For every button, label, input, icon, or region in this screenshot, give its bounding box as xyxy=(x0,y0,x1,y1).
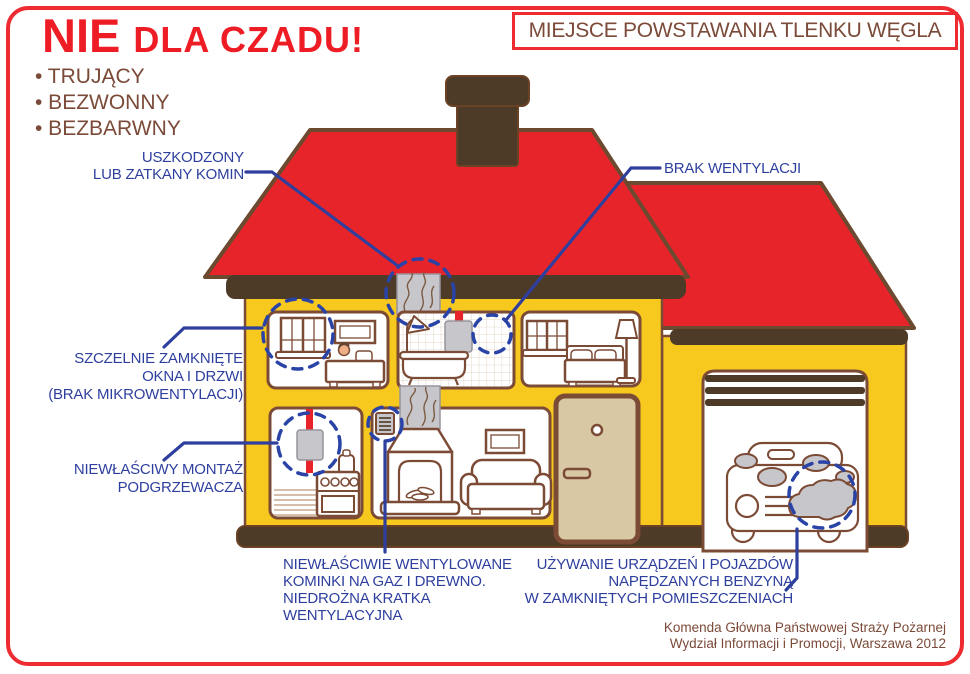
blocked-chimney xyxy=(397,272,440,314)
kitchen-water-heater xyxy=(297,430,323,460)
header-box-text: MIEJSCE POWSTAWANIA TLENKU WĘGLA xyxy=(529,19,942,43)
chimney-stack xyxy=(457,100,518,166)
garage-door-slat xyxy=(705,375,865,382)
poster-title: NIE DLA CZADU! xyxy=(42,8,364,63)
poster: NIE DLA CZADU! MIEJSCE POWSTAWANIA TLENK… xyxy=(0,0,970,674)
title-nie: NIE xyxy=(42,8,120,63)
garage-door-slat xyxy=(705,399,865,406)
window-sill xyxy=(276,352,330,358)
main-roof xyxy=(205,130,688,277)
door-handle xyxy=(564,469,590,478)
fireplace-flue xyxy=(400,386,440,429)
floor-lamp-shade xyxy=(616,320,637,338)
label-heater: NIEWŁAŚCIWY MONTAŻ PODGRZEWACZA xyxy=(0,461,243,497)
header-box: MIEJSCE POWSTAWANIA TLENKU WĘGLA xyxy=(512,12,958,50)
bedroom-right xyxy=(522,312,640,386)
bullet-list: • TRUJĄCY • BEZWONNY • BEZBARWNY xyxy=(35,64,181,142)
main-eave xyxy=(226,275,686,299)
front-door xyxy=(556,396,638,542)
bullet-item: • BEZWONNY xyxy=(35,90,181,116)
car-headlight xyxy=(736,495,758,517)
bathroom xyxy=(398,311,514,388)
garage-eave xyxy=(670,329,908,345)
bullet-item: • TRUJĄCY xyxy=(35,64,181,90)
bullet-item: • BEZBARWNY xyxy=(35,116,181,142)
bathroom-water-heater xyxy=(445,321,472,352)
car-windshield xyxy=(768,450,794,459)
label-garage: UŻYWANIE URZĄDZEŃ I POJAZDÓW NAPĘDZANYCH… xyxy=(450,556,793,607)
sofa xyxy=(461,460,551,514)
title-dla-czadu: DLA CZADU! xyxy=(133,19,364,61)
chimney-cap xyxy=(446,76,529,106)
label-no-ventilation: BRAK WENTYLACJI xyxy=(664,160,801,177)
bed xyxy=(565,360,625,382)
oven-door xyxy=(322,496,354,512)
bed xyxy=(326,361,384,382)
bathtub xyxy=(403,359,465,378)
window-sill xyxy=(523,350,571,356)
garage-door-slat xyxy=(705,387,865,394)
door-peephole xyxy=(592,425,602,435)
vent-grille xyxy=(376,413,394,434)
label-chimney: USZKODZONY LUB ZATKANY KOMIN xyxy=(0,149,244,183)
label-sealed-windows: SZCZELNIE ZAMKNIĘTE OKNA I DRZWI (BRAK M… xyxy=(0,350,243,404)
footer-credit: Komenda Główna Państwowej Straży Pożarne… xyxy=(664,620,946,652)
